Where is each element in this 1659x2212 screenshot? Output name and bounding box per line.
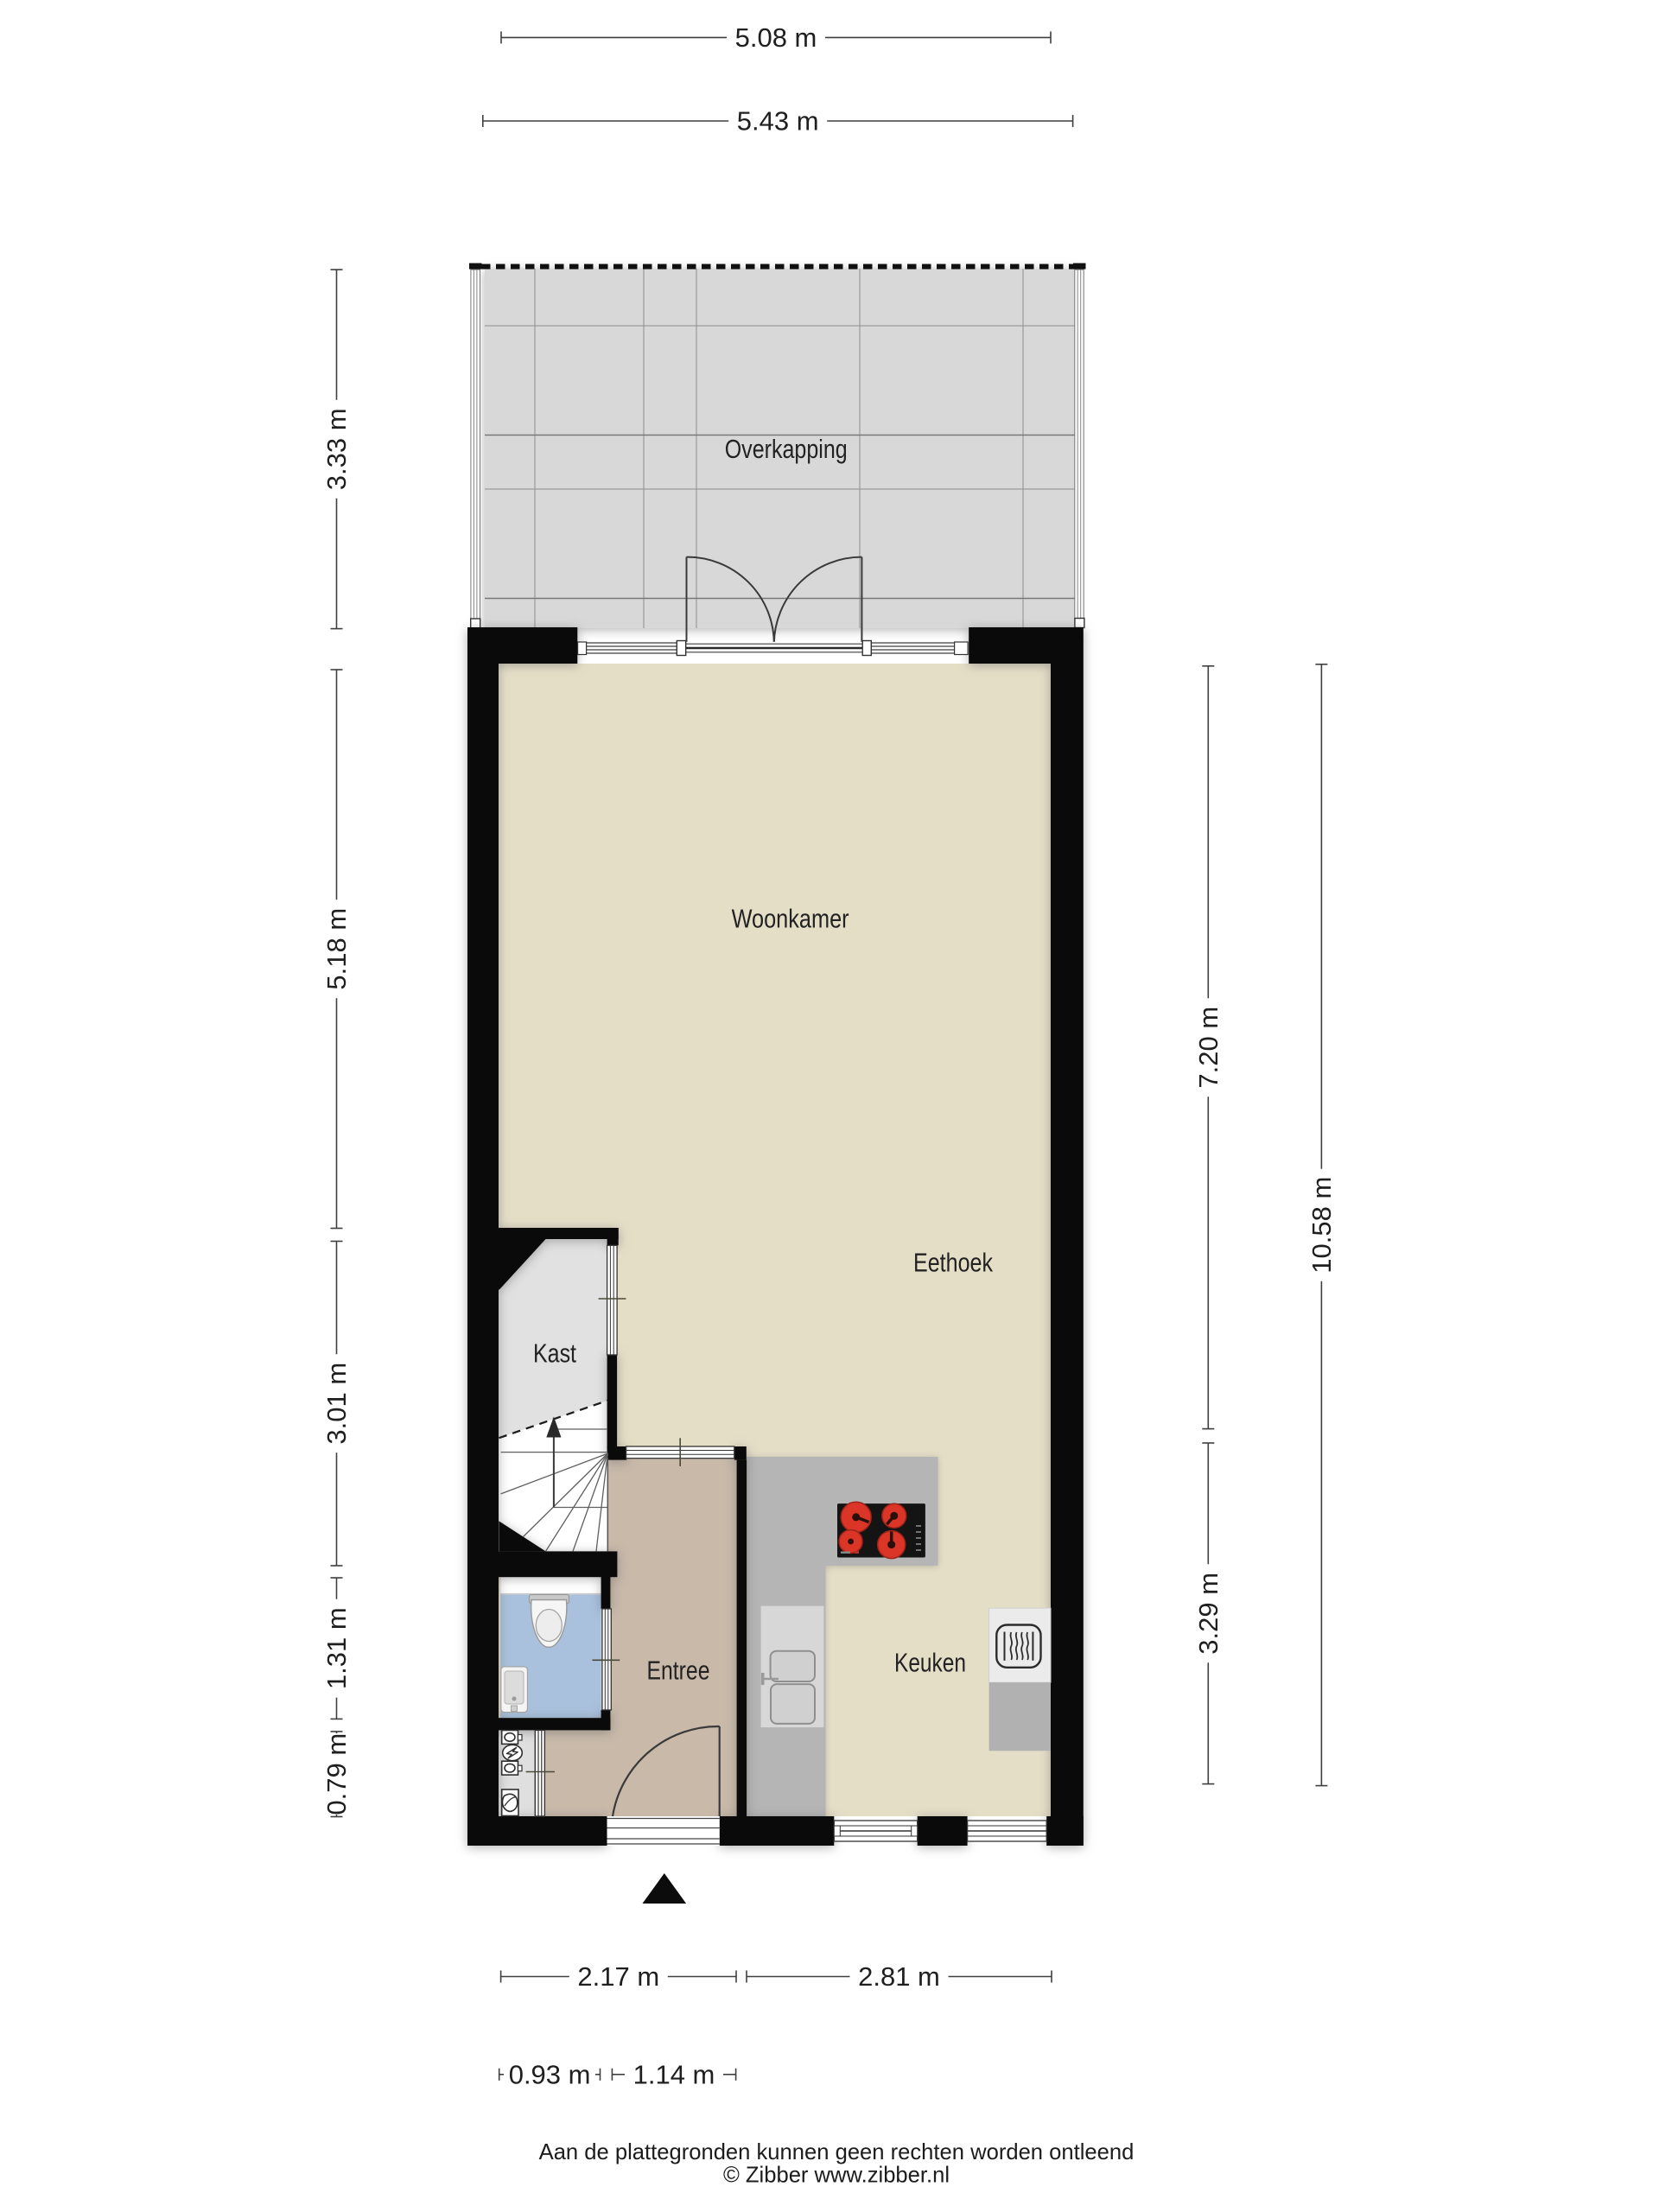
svg-text:5.43 m: 5.43 m	[737, 106, 819, 137]
svg-text:7.20 m: 7.20 m	[1193, 1007, 1224, 1089]
svg-text:Eethoek: Eethoek	[913, 1248, 993, 1278]
svg-text:3.01 m: 3.01 m	[321, 1363, 352, 1445]
svg-text:5.08 m: 5.08 m	[735, 22, 817, 53]
svg-text:Woonkamer: Woonkamer	[732, 904, 849, 934]
svg-text:Overkapping: Overkapping	[725, 434, 848, 464]
svg-text:© Zibber www.zibber.nl: © Zibber www.zibber.nl	[723, 2164, 950, 2188]
svg-text:3.29 m: 3.29 m	[1193, 1573, 1224, 1655]
svg-text:Keuken: Keuken	[894, 1648, 966, 1678]
svg-text:1.31 m: 1.31 m	[321, 1607, 352, 1689]
svg-text:Aan de plattegronden kunnen ge: Aan de plattegronden kunnen geen rechten…	[539, 2140, 1135, 2164]
svg-text:2.81 m: 2.81 m	[858, 1961, 940, 1992]
svg-text:Entree: Entree	[647, 1656, 710, 1686]
svg-text:0.79 m: 0.79 m	[321, 1733, 352, 1815]
svg-text:5.18 m: 5.18 m	[321, 908, 352, 990]
svg-text:Kast: Kast	[533, 1338, 576, 1369]
svg-text:3.33 m: 3.33 m	[321, 408, 352, 490]
svg-text:10.58 m: 10.58 m	[1306, 1177, 1337, 1274]
svg-text:2.17 m: 2.17 m	[577, 1961, 659, 1992]
svg-text:0.93 m: 0.93 m	[509, 2059, 591, 2089]
svg-text:1.14 m: 1.14 m	[633, 2059, 715, 2089]
